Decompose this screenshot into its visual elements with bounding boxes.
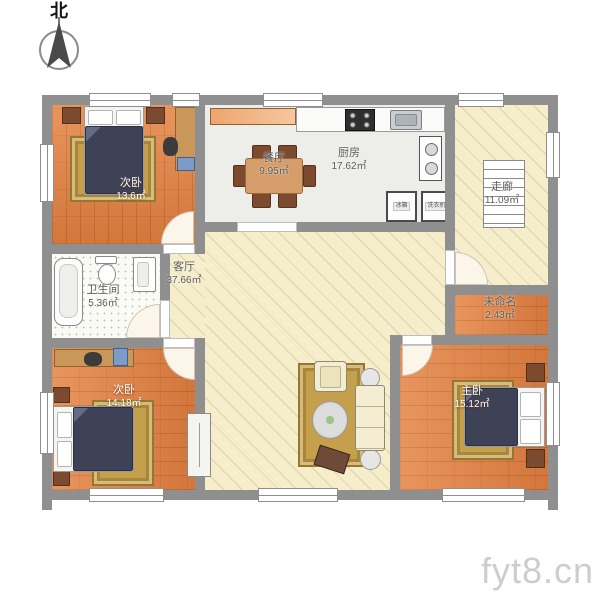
room-area: 9.95㎡: [259, 166, 288, 179]
room-name: 主卧: [454, 385, 489, 399]
compass-needle-icon: [28, 17, 90, 75]
room-label-bedroom-top-left: 次卧 13.6㎡: [116, 177, 145, 203]
sideboard: [210, 108, 296, 125]
room-area: 2.43㎡: [484, 310, 517, 323]
wall-bedroom2-top-corner: [195, 338, 205, 348]
nightstand-bottom: [53, 470, 70, 486]
duvet: [73, 407, 133, 471]
wall-bathroom-bottom: [42, 338, 163, 348]
printer: [177, 157, 195, 171]
window: [458, 93, 504, 107]
window: [89, 93, 151, 107]
burner: [425, 143, 438, 156]
wall-kitchen-bottom-b: [297, 222, 445, 232]
floorplan-canvas: 北 冰箱: [0, 0, 600, 600]
kitchen-sink: [390, 110, 422, 130]
room-name: 卫生间: [87, 284, 120, 298]
room-name: 次卧: [106, 384, 141, 398]
pillow: [57, 412, 72, 438]
gas-stove: [345, 109, 375, 131]
window: [546, 132, 560, 178]
room-name: 厨房: [331, 147, 366, 161]
cabinet-handle: [199, 423, 200, 466]
armchair: [314, 361, 347, 392]
room-label-corridor: 走廊 11.09㎡: [485, 181, 519, 207]
room-label-bathroom: 卫生间 5.36㎡: [87, 284, 120, 310]
burner: [425, 162, 438, 175]
toilet-bowl: [98, 264, 116, 285]
pillow: [520, 419, 541, 444]
desk-chair: [84, 352, 102, 366]
bed-bottom-left: [53, 406, 134, 472]
room-name: 未命名: [484, 296, 517, 310]
wall-corridor-bottom: [445, 285, 558, 295]
wall-master-left: [390, 335, 400, 490]
nightstand-top: [526, 363, 545, 382]
window: [258, 488, 338, 502]
pillow: [520, 392, 541, 417]
side-table: [360, 449, 381, 470]
wall-master-top-b: [432, 335, 445, 345]
bathtub: [54, 258, 83, 326]
room-name: 次卧: [116, 177, 145, 191]
door-opening: [402, 335, 432, 345]
armchair-seat: [320, 366, 341, 388]
window: [546, 382, 560, 446]
window: [442, 488, 525, 502]
two-burner-unit: [419, 136, 442, 181]
room-name: 餐厅: [259, 152, 288, 166]
window: [172, 93, 200, 107]
window: [89, 488, 164, 502]
room-area: 11.09㎡: [485, 195, 519, 208]
window: [263, 93, 323, 107]
pillow: [88, 110, 113, 125]
pillow: [57, 441, 72, 467]
room-label-living: 客厅 37.66㎡: [166, 261, 201, 287]
room-label-kitchen: 厨房 17.62㎡: [331, 147, 366, 173]
hall-cabinet: [187, 413, 211, 477]
room-label-bedroom-bottom-left: 次卧 14.18㎡: [106, 384, 141, 410]
bathroom-sink: [133, 257, 156, 292]
dining-chair: [303, 165, 316, 187]
nightstand-bottom: [526, 449, 545, 468]
door-opening: [163, 338, 195, 348]
passage-opening: [237, 222, 297, 232]
computer: [113, 348, 128, 366]
nightstand-left: [62, 107, 81, 124]
room-name: 客厅: [166, 261, 201, 275]
wall-bedroom1-bottom: [42, 244, 163, 254]
fridge-label: 冰箱: [393, 202, 409, 211]
desk-chair: [163, 137, 178, 156]
dining-chair: [252, 193, 271, 208]
door-opening: [163, 244, 195, 254]
wall-unnamed-left: [445, 295, 455, 335]
dining-chair: [278, 193, 297, 208]
room-area: 13.6㎡: [116, 191, 145, 204]
room-name: 走廊: [485, 181, 519, 195]
sofa: [355, 385, 385, 451]
room-label-unnamed: 未命名 2.43㎡: [484, 296, 517, 322]
pillow: [116, 110, 141, 125]
room-label-master: 主卧 15.12㎡: [454, 385, 489, 411]
room-label-dining: 餐厅 9.95㎡: [259, 152, 288, 178]
toilet: [95, 256, 117, 264]
window: [40, 144, 54, 202]
compass: 北: [28, 2, 90, 80]
room-area: 15.12㎡: [454, 399, 489, 412]
site-watermark: fyt8.cn: [481, 550, 594, 592]
wall-corridor-left: [445, 105, 455, 250]
nightstand-top: [53, 387, 70, 403]
wall-bedroom1-right: [195, 105, 205, 254]
room-area: 14.18㎡: [106, 398, 141, 411]
window: [40, 392, 54, 454]
nightstand-right: [146, 107, 165, 124]
door-opening: [445, 250, 455, 285]
wall-unnamed-bottom: [445, 335, 558, 345]
wall-kitchen-bottom-a: [205, 222, 237, 232]
room-area: 5.36㎡: [87, 298, 120, 311]
coffee-table: [312, 401, 348, 439]
room-area: 17.62㎡: [331, 161, 366, 174]
room-area: 37.66㎡: [166, 275, 201, 288]
bathroom-sink-basin: [137, 262, 149, 287]
bathtub-basin: [59, 264, 78, 318]
sink-basin: [395, 114, 417, 126]
fridge: 冰箱: [386, 191, 417, 222]
door-opening: [160, 300, 170, 338]
